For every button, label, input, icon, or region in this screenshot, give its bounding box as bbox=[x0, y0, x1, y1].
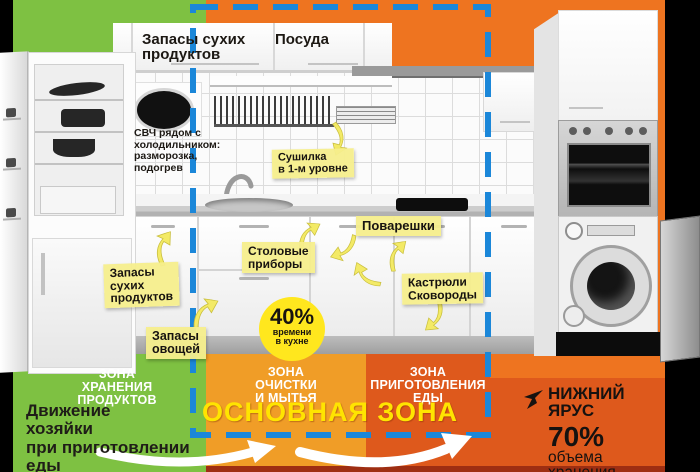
time-badge-value: 40% bbox=[259, 306, 325, 328]
label-dishes: Посуда bbox=[275, 32, 329, 47]
sticky-dry-stock: Запасы сухих продуктов bbox=[103, 262, 179, 308]
kitchen-zones-infographic: Запасы сухих продуктов Посуда СВЧ рядом … bbox=[0, 0, 700, 472]
lower-tier-caption: объема хранения в кухне bbox=[548, 450, 616, 472]
sticky-ladles: Поварешки bbox=[356, 216, 441, 236]
sticky-vegetables: Запасы овощей bbox=[146, 327, 206, 359]
lower-tier-value: 70% bbox=[548, 423, 604, 451]
time-badge: 40% времени в кухне bbox=[259, 297, 325, 361]
label-dry-stock-top: Запасы сухих продуктов bbox=[142, 32, 245, 63]
movement-caption: Движение хозяйки при приготовлении еды bbox=[26, 402, 206, 472]
lower-tier-heading: НИЖНИЙ ЯРУС bbox=[548, 386, 625, 419]
sticky-cutlery: Столовые приборы bbox=[242, 242, 315, 273]
black-corner-arrow-icon bbox=[522, 388, 544, 410]
time-badge-caption: времени в кухне bbox=[259, 328, 325, 347]
label-microwave-note: СВЧ рядом с холодильником: разморозка, п… bbox=[134, 128, 220, 174]
main-zone-title: ОСНОВНАЯ ЗОНА bbox=[170, 397, 490, 428]
sticky-pots: Кастрюли Сковороды bbox=[402, 272, 483, 305]
yellow-arrow-icon bbox=[383, 241, 410, 273]
sticky-dryer: Сушилка в 1-м уровне bbox=[272, 148, 354, 179]
